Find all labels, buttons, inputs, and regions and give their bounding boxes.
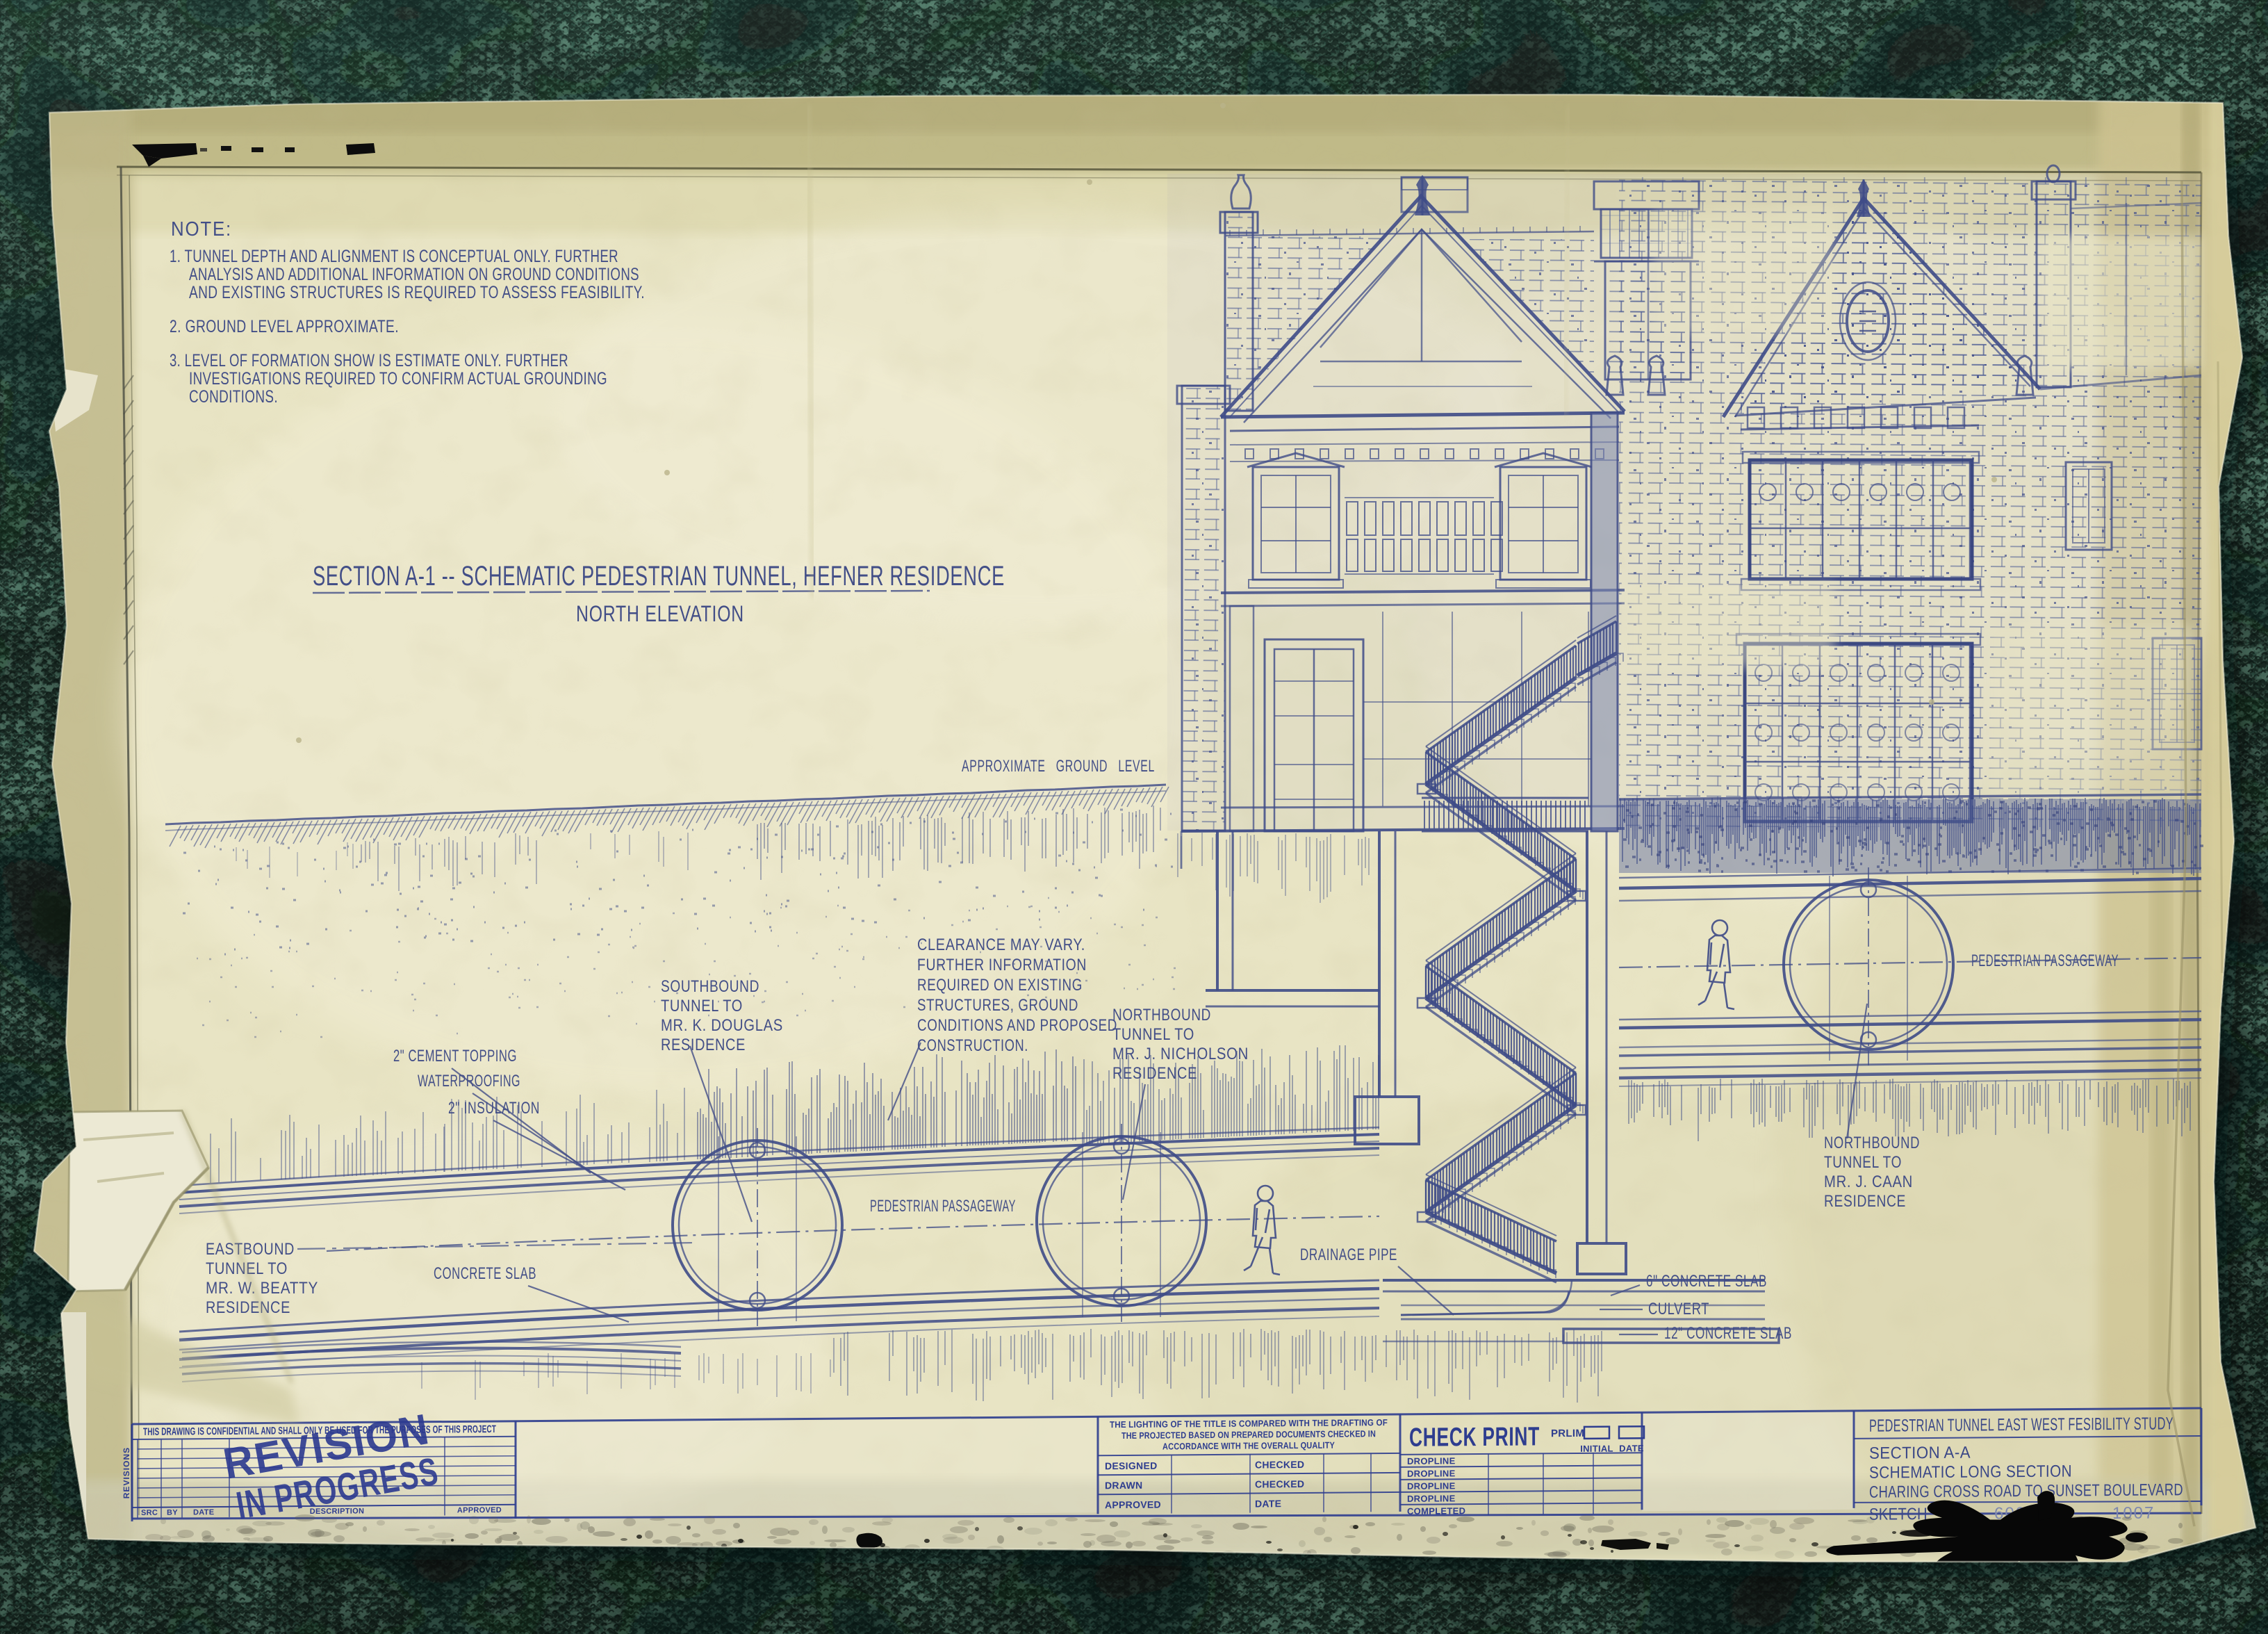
svg-text:DRAINAGE PIPE: DRAINAGE PIPE [1300, 1245, 1397, 1264]
svg-text:THE LIGHTING OF THE TITLE IS C: THE LIGHTING OF THE TITLE IS COMPARED WI… [1110, 1417, 1388, 1430]
svg-text:6" CONCRETE SLAB: 6" CONCRETE SLAB [1646, 1272, 1767, 1291]
svg-text:NOTE:: NOTE: [171, 218, 232, 240]
svg-text:STRUCTURES, GROUND: STRUCTURES, GROUND [917, 996, 1078, 1015]
svg-text:CONDITIONS.: CONDITIONS. [189, 387, 278, 407]
svg-text:3. LEVEL OF FORMATION SHOW IS: 3. LEVEL OF FORMATION SHOW IS ESTIMATE O… [170, 351, 568, 370]
svg-text:RESIDENCE: RESIDENCE [206, 1298, 290, 1317]
svg-text:BY: BY [167, 1508, 178, 1517]
svg-text:INVESTIGATIONS REQUIRED TO CON: INVESTIGATIONS REQUIRED TO CONFIRM ACTUA… [189, 369, 607, 389]
svg-text:MR. J. NICHOLSON: MR. J. NICHOLSON [1112, 1045, 1249, 1063]
svg-text:CLEARANCE MAY VARY.: CLEARANCE MAY VARY. [917, 936, 1085, 954]
svg-text:DATE: DATE [1619, 1443, 1644, 1453]
svg-text:DATE: DATE [193, 1508, 214, 1517]
svg-text:RESIDENCE: RESIDENCE [661, 1036, 746, 1054]
svg-text:WATERPROOFING: WATERPROOFING [418, 1072, 520, 1090]
svg-text:PRLIM: PRLIM [1551, 1428, 1584, 1439]
svg-text:ACCORDANCE WITH THE OVERALL QU: ACCORDANCE WITH THE OVERALL QUALITY [1162, 1440, 1335, 1452]
svg-text:2" CEMENT TOPPING: 2" CEMENT TOPPING [393, 1047, 517, 1065]
svg-text:SOUTHBOUND: SOUTHBOUND [661, 977, 759, 996]
svg-text:PEDESTRIAN PASSAGEWAY: PEDESTRIAN PASSAGEWAY [1971, 951, 2119, 970]
svg-text:CONDITIONS AND PROPOSED: CONDITIONS AND PROPOSED [917, 1016, 1117, 1035]
svg-text:NORTHBOUND: NORTHBOUND [1824, 1134, 1920, 1152]
svg-text:2" INSULATION: 2" INSULATION [448, 1099, 540, 1118]
svg-text:1. TUNNEL DEPTH AND ALIGNMENT: 1. TUNNEL DEPTH AND ALIGNMENT IS CONCEPT… [170, 247, 618, 266]
svg-text:ANALYSIS AND ADDITIONAL INFORM: ANALYSIS AND ADDITIONAL INFORMATION ON G… [189, 265, 639, 284]
svg-text:TUNNEL TO: TUNNEL TO [1112, 1025, 1194, 1044]
svg-text:FURTHER INFORMATION: FURTHER INFORMATION [917, 956, 1087, 974]
svg-text:1007: 1007 [2112, 1504, 2155, 1523]
svg-text:MR. W. BEATTY: MR. W. BEATTY [206, 1279, 318, 1298]
svg-text:DROPLINE: DROPLINE [1407, 1455, 1456, 1466]
svg-text:APPROXIMATE GROUND LEVEL: APPROXIMATE GROUND LEVEL [962, 757, 1155, 776]
svg-text:EASTBOUND: EASTBOUND [206, 1240, 295, 1259]
svg-text:CHECK PRINT: CHECK PRINT [1409, 1422, 1540, 1452]
svg-text:SRC: SRC [141, 1509, 158, 1517]
svg-text:CULVERT: CULVERT [1648, 1300, 1709, 1318]
svg-text:DROPLINE: DROPLINE [1407, 1468, 1456, 1479]
svg-text:DESIGNED: DESIGNED [1105, 1460, 1158, 1472]
svg-text:REVISIONS: REVISIONS [122, 1447, 131, 1498]
svg-text:DROPLINE: DROPLINE [1407, 1480, 1456, 1492]
svg-text:APPROVED: APPROVED [1105, 1499, 1161, 1511]
svg-text:REQUIRED ON EXISTING: REQUIRED ON EXISTING [917, 976, 1083, 995]
svg-text:COMPLETED: COMPLETED [1407, 1505, 1465, 1517]
svg-text:RESIDENCE: RESIDENCE [1112, 1064, 1197, 1083]
svg-text:2. GROUND LEVEL APPROXIMATE.: 2. GROUND LEVEL APPROXIMATE. [170, 317, 399, 336]
svg-text:TUNNEL TO: TUNNEL TO [661, 997, 743, 1015]
svg-text:PEDESTRIAN PASSAGEWAY: PEDESTRIAN PASSAGEWAY [870, 1197, 1016, 1216]
svg-text:CHECKED: CHECKED [1255, 1478, 1304, 1490]
svg-text:SECTION A-A: SECTION A-A [1869, 1444, 1971, 1463]
svg-text:TUNNEL TO: TUNNEL TO [1824, 1153, 1902, 1172]
svg-text:MR. J. CAAN: MR. J. CAAN [1824, 1173, 1913, 1191]
svg-text:SCHEMATIC LONG SECTION: SCHEMATIC LONG SECTION [1869, 1462, 2072, 1482]
svg-text:RESIDENCE: RESIDENCE [1824, 1192, 1906, 1211]
svg-text:DATE: DATE [1255, 1498, 1281, 1509]
svg-text:NORTH ELEVATION: NORTH ELEVATION [576, 601, 744, 626]
svg-text:NORTHBOUND: NORTHBOUND [1112, 1006, 1211, 1024]
svg-text:SECTION A-1 -- SCHEMATIC PEDES: SECTION A-1 -- SCHEMATIC PEDESTRIAN TUNN… [313, 561, 1005, 591]
svg-text:CONSTRUCTION.: CONSTRUCTION. [917, 1036, 1028, 1055]
svg-text:CHARING CROSS ROAD TO SUNSET B: CHARING CROSS ROAD TO SUNSET BOULEVARD [1869, 1480, 2183, 1501]
svg-text:APPROVED: APPROVED [457, 1506, 502, 1514]
svg-text:THE PROJECTED BASED ON PREPARE: THE PROJECTED BASED ON PREPARED DOCUMENT… [1121, 1428, 1376, 1441]
svg-text:CHECKED: CHECKED [1255, 1459, 1304, 1471]
svg-text:AND EXISTING STRUCTURES IS REQ: AND EXISTING STRUCTURES IS REQUIRED TO A… [189, 283, 645, 302]
svg-text:PEDESTRIAN TUNNEL EAST WEST FE: PEDESTRIAN TUNNEL EAST WEST FESIBILITY S… [1869, 1414, 2173, 1435]
svg-text:DRAWN: DRAWN [1105, 1480, 1142, 1491]
svg-text:12" CONCRETE SLAB: 12" CONCRETE SLAB [1664, 1324, 1792, 1343]
svg-text:CONCRETE SLAB: CONCRETE SLAB [434, 1264, 536, 1283]
svg-text:DROPLINE: DROPLINE [1407, 1493, 1456, 1504]
svg-text:MR. K. DOUGLAS: MR. K. DOUGLAS [661, 1016, 783, 1035]
